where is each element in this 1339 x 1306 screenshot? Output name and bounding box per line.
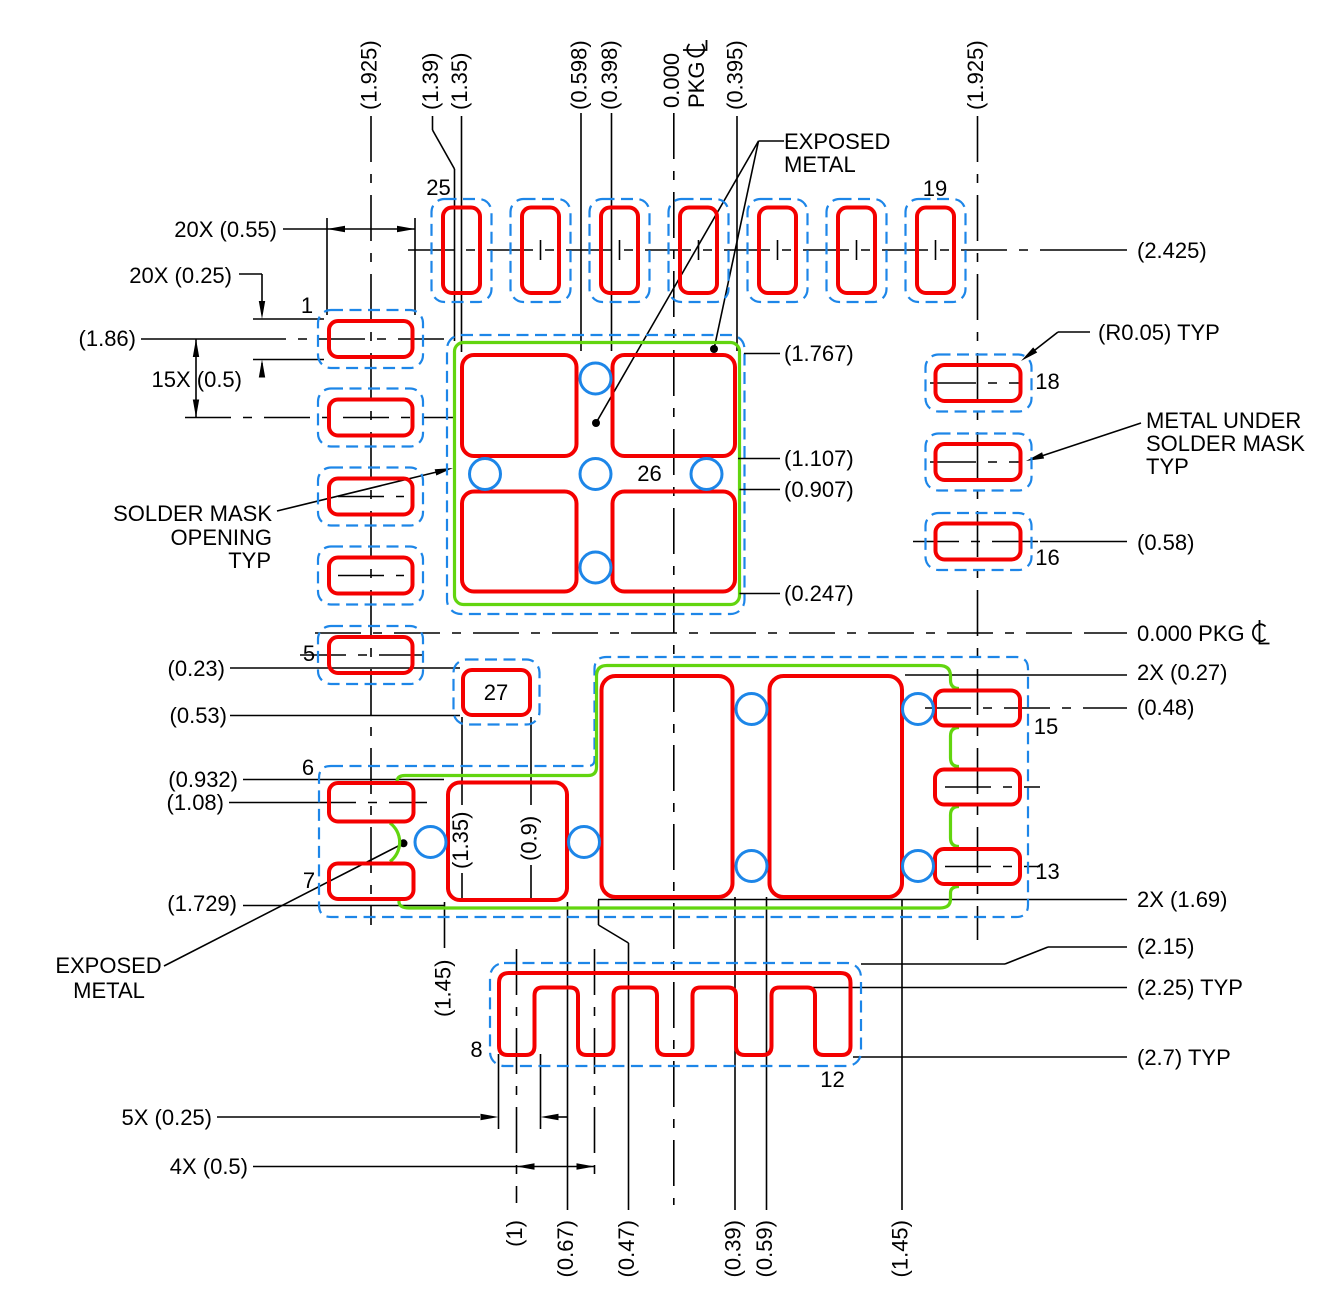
svg-text:25: 25 [426,175,450,200]
svg-text:18: 18 [1035,369,1059,394]
svg-text:26: 26 [637,461,661,486]
svg-text:PKG: PKG [684,62,709,108]
svg-text:TYP: TYP [228,548,271,573]
svg-text:20X (0.55): 20X (0.55) [174,217,277,242]
svg-text:16: 16 [1035,545,1059,570]
svg-text:13: 13 [1035,859,1059,884]
svg-text:2X (1.69): 2X (1.69) [1137,887,1228,912]
svg-text:(2.425): (2.425) [1137,238,1207,263]
svg-text:19: 19 [923,176,947,201]
svg-text:(1.39): (1.39) [418,53,443,110]
svg-text:METAL: METAL [73,978,145,1003]
svg-text:(1.35): (1.35) [448,812,473,869]
svg-text:6: 6 [302,755,314,780]
svg-text:(1.35): (1.35) [447,53,472,110]
svg-text:METAL UNDER: METAL UNDER [1146,408,1301,433]
svg-text:(2.7) TYP: (2.7) TYP [1137,1045,1231,1070]
svg-text:(0.59): (0.59) [752,1220,777,1277]
svg-text:0.000 PKG: 0.000 PKG [1137,621,1245,646]
svg-text:SOLDER MASK: SOLDER MASK [113,501,272,526]
svg-text:(0.598): (0.598) [567,40,592,110]
svg-text:(1.767): (1.767) [784,341,854,366]
svg-text:(1.925): (1.925) [963,40,988,110]
svg-text:1: 1 [301,293,313,318]
svg-text:METAL: METAL [784,152,856,177]
svg-text:(0.58): (0.58) [1137,530,1194,555]
svg-text:SOLDER MASK: SOLDER MASK [1146,431,1305,456]
svg-text:7: 7 [303,868,315,893]
svg-text:(0.398): (0.398) [597,40,622,110]
svg-text:4X (0.5): 4X (0.5) [170,1154,248,1179]
svg-text:(0.247): (0.247) [784,581,854,606]
svg-text:27: 27 [484,680,508,705]
svg-text:5: 5 [303,641,315,666]
svg-text:0.000: 0.000 [659,53,684,108]
svg-text:(1.107): (1.107) [784,446,854,471]
svg-text:12: 12 [820,1067,844,1092]
svg-text:(2.25) TYP: (2.25) TYP [1137,975,1243,1000]
svg-text:(0.907): (0.907) [784,477,854,502]
svg-text:8: 8 [470,1037,482,1062]
svg-text:OPENING: OPENING [171,525,272,550]
svg-text:15X (0.5): 15X (0.5) [152,367,243,392]
svg-text:(0.395): (0.395) [723,40,748,110]
svg-text:(0.39): (0.39) [721,1220,746,1277]
svg-text:(1.86): (1.86) [79,326,136,351]
svg-text:(0.67): (0.67) [553,1220,578,1277]
svg-text:2X (0.27): 2X (0.27) [1137,660,1228,685]
svg-text:TYP: TYP [1146,454,1189,479]
svg-text:(0.47): (0.47) [614,1220,639,1277]
svg-text:(1.729): (1.729) [167,891,237,916]
svg-text:(1.45): (1.45) [888,1220,913,1277]
svg-text:20X (0.25): 20X (0.25) [129,263,232,288]
svg-text:EXPOSED: EXPOSED [784,129,890,154]
svg-text:EXPOSED: EXPOSED [55,953,161,978]
svg-text:(0.53): (0.53) [170,703,227,728]
svg-text:(1.08): (1.08) [167,790,224,815]
svg-text:(1.925): (1.925) [357,40,382,110]
svg-text:(1.45): (1.45) [431,960,456,1017]
svg-text:(2.15): (2.15) [1137,934,1194,959]
svg-text:(0.48): (0.48) [1137,695,1194,720]
svg-text:15: 15 [1034,714,1058,739]
svg-text:5X (0.25): 5X (0.25) [122,1105,213,1130]
svg-text:(0.23): (0.23) [168,656,225,681]
svg-text:(1): (1) [502,1220,527,1247]
svg-text:(0.932): (0.932) [168,767,238,792]
svg-text:(0.9): (0.9) [517,816,542,861]
svg-text:(R0.05) TYP: (R0.05) TYP [1098,320,1220,345]
